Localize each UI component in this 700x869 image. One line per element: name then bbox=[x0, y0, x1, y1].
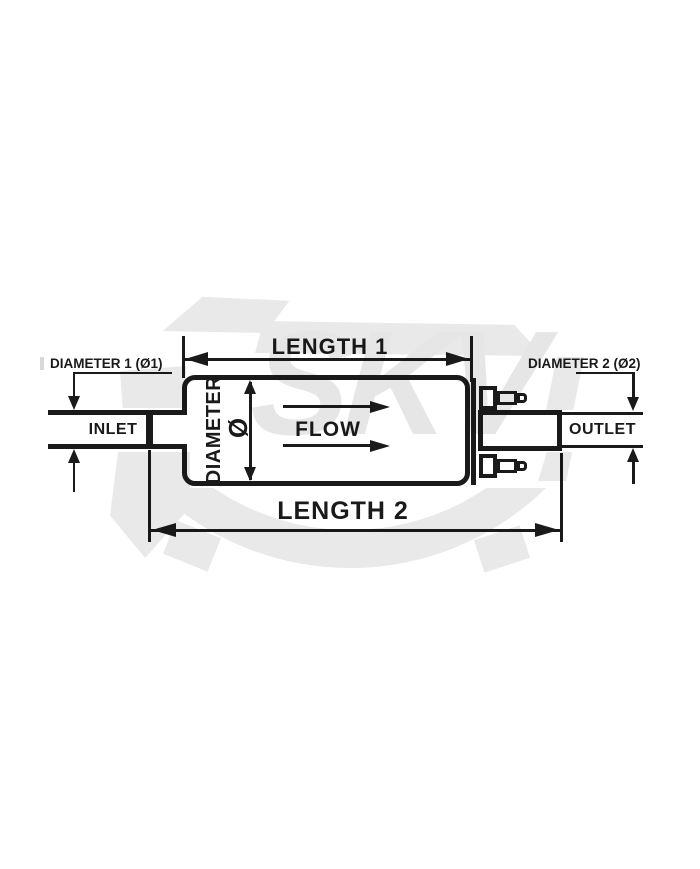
edge-artifact bbox=[40, 357, 44, 370]
diameter2-dim-line-upper bbox=[632, 372, 635, 399]
terminal-bottom-stud bbox=[497, 459, 517, 473]
diameter1-arrow-down-icon bbox=[68, 396, 80, 410]
watermark-tooth-right bbox=[474, 525, 530, 572]
diameter2-leader-line bbox=[576, 372, 634, 375]
flow-arrow-top-icon bbox=[370, 401, 390, 413]
watermark-right-band-lower bbox=[538, 452, 574, 481]
inlet-label: INLET bbox=[78, 421, 148, 439]
diameter2-arrow-down-icon bbox=[627, 397, 639, 411]
diameter1-dim-line-upper bbox=[73, 372, 76, 398]
diameter-symbol: Ø bbox=[225, 418, 251, 438]
inlet-pipe-top-line bbox=[48, 410, 186, 415]
length1-label: LENGTH 1 bbox=[250, 334, 410, 360]
diameter1-leader-line bbox=[73, 372, 172, 375]
length2-label: LENGTH 2 bbox=[263, 497, 423, 526]
length1-arrowhead-left-icon bbox=[185, 352, 208, 366]
diameter2-label: DIAMETER 2 (Ø2) bbox=[528, 356, 641, 371]
flow-arrow-bottom-icon bbox=[370, 440, 390, 452]
outlet-stub bbox=[478, 410, 562, 451]
length2-arrowhead-left-icon bbox=[152, 523, 176, 537]
length1-arrowhead-right-icon bbox=[446, 352, 469, 366]
watermark-top-wedge bbox=[160, 295, 292, 333]
body-notch-opening bbox=[180, 415, 190, 444]
diameter1-dim-line-lower bbox=[73, 461, 76, 492]
flow-arrow-top-line bbox=[283, 405, 371, 408]
length2-arrowhead-right-icon bbox=[535, 523, 559, 537]
flow-arrow-bottom-line bbox=[283, 444, 371, 447]
terminal-bottom-tip bbox=[517, 461, 527, 471]
outlet-pipe: OUTLET bbox=[562, 412, 643, 448]
terminal-top-nut bbox=[479, 386, 497, 410]
terminal-bottom-nut bbox=[479, 454, 497, 478]
terminal-top-stud bbox=[497, 391, 517, 405]
diameter-arrow-up-icon bbox=[244, 380, 256, 394]
diameter2-dim-line-lower bbox=[632, 460, 635, 484]
end-cap-plate bbox=[471, 378, 477, 485]
flow-label: FLOW bbox=[283, 418, 373, 442]
outlet-label: OUTLET bbox=[569, 421, 636, 439]
diameter-dimension-line bbox=[249, 382, 252, 480]
length2-dimension-line bbox=[151, 529, 560, 532]
diameter-arrow-down-icon bbox=[244, 467, 256, 481]
fuel-pump-dimension-diagram: OUTLET INLET DIAMETER Ø FLOW LENGTH 1 LE… bbox=[0, 0, 700, 869]
length1-dimension-line bbox=[184, 358, 470, 361]
terminal-top-tip bbox=[517, 393, 527, 403]
diameter1-label: DIAMETER 1 (Ø1) bbox=[50, 356, 163, 371]
